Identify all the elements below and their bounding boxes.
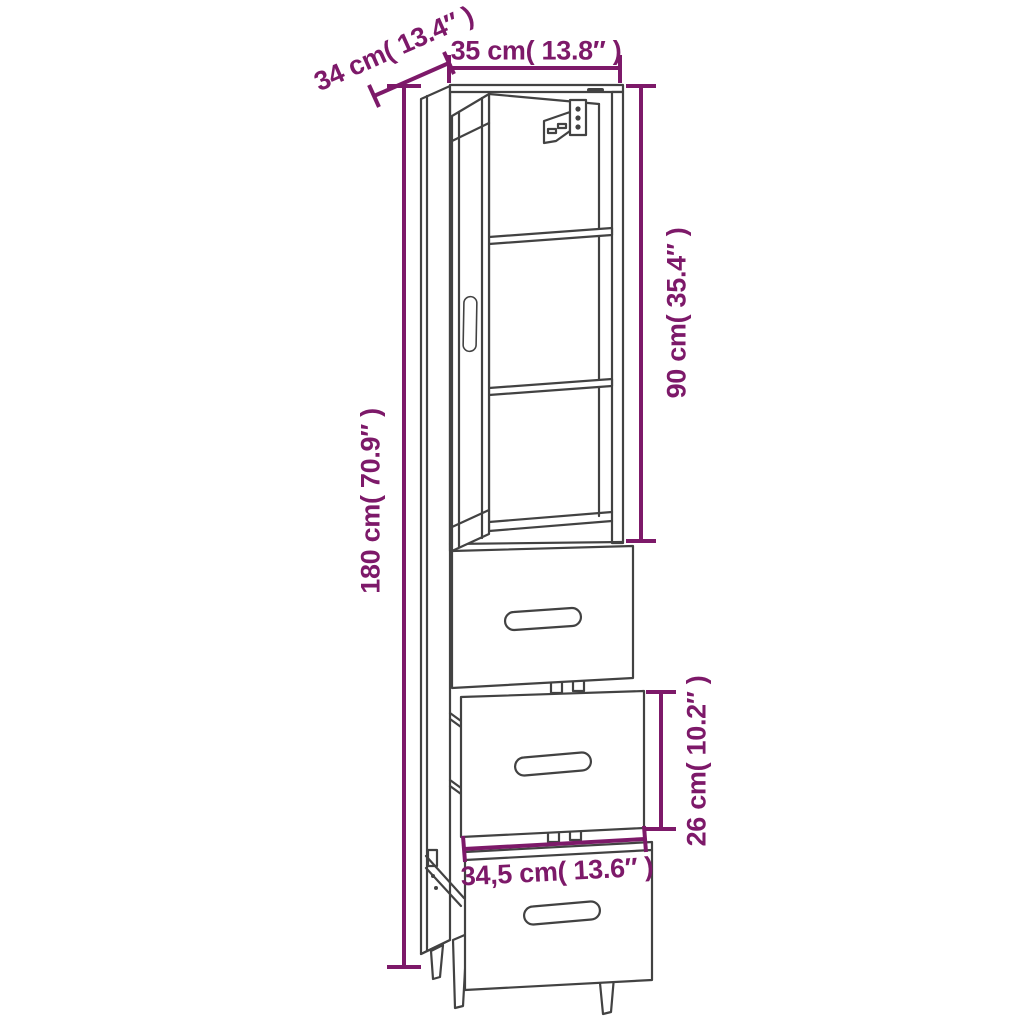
dim-line-height-90 (626, 86, 656, 541)
left-side-panel (421, 86, 450, 954)
shelf-lower (489, 379, 612, 395)
dimension-label-drawer-height: 26 cm( 10.2″ ) (682, 676, 713, 847)
dimension-label-width: 35 cm( 13.8″ ) (451, 36, 622, 67)
drawer-top (452, 546, 633, 688)
dimension-label-upper-height: 90 cm( 35.4″ ) (662, 228, 693, 399)
dimension-label-total-height: 180 cm( 70.9″ ) (356, 408, 387, 594)
diagram-canvas: 34 cm( 13.4″ ) 35 cm( 13.8″ ) 90 cm( 35.… (0, 0, 1024, 1024)
shelf-upper (489, 228, 612, 244)
dim-line-height-180 (387, 86, 421, 967)
dim-line-height-26 (646, 692, 676, 829)
drawer-middle (461, 691, 644, 837)
door-handle (461, 296, 478, 351)
glass-door (452, 94, 489, 551)
drawer-top-handle (505, 608, 582, 631)
wall-mount-bracket (544, 90, 602, 143)
